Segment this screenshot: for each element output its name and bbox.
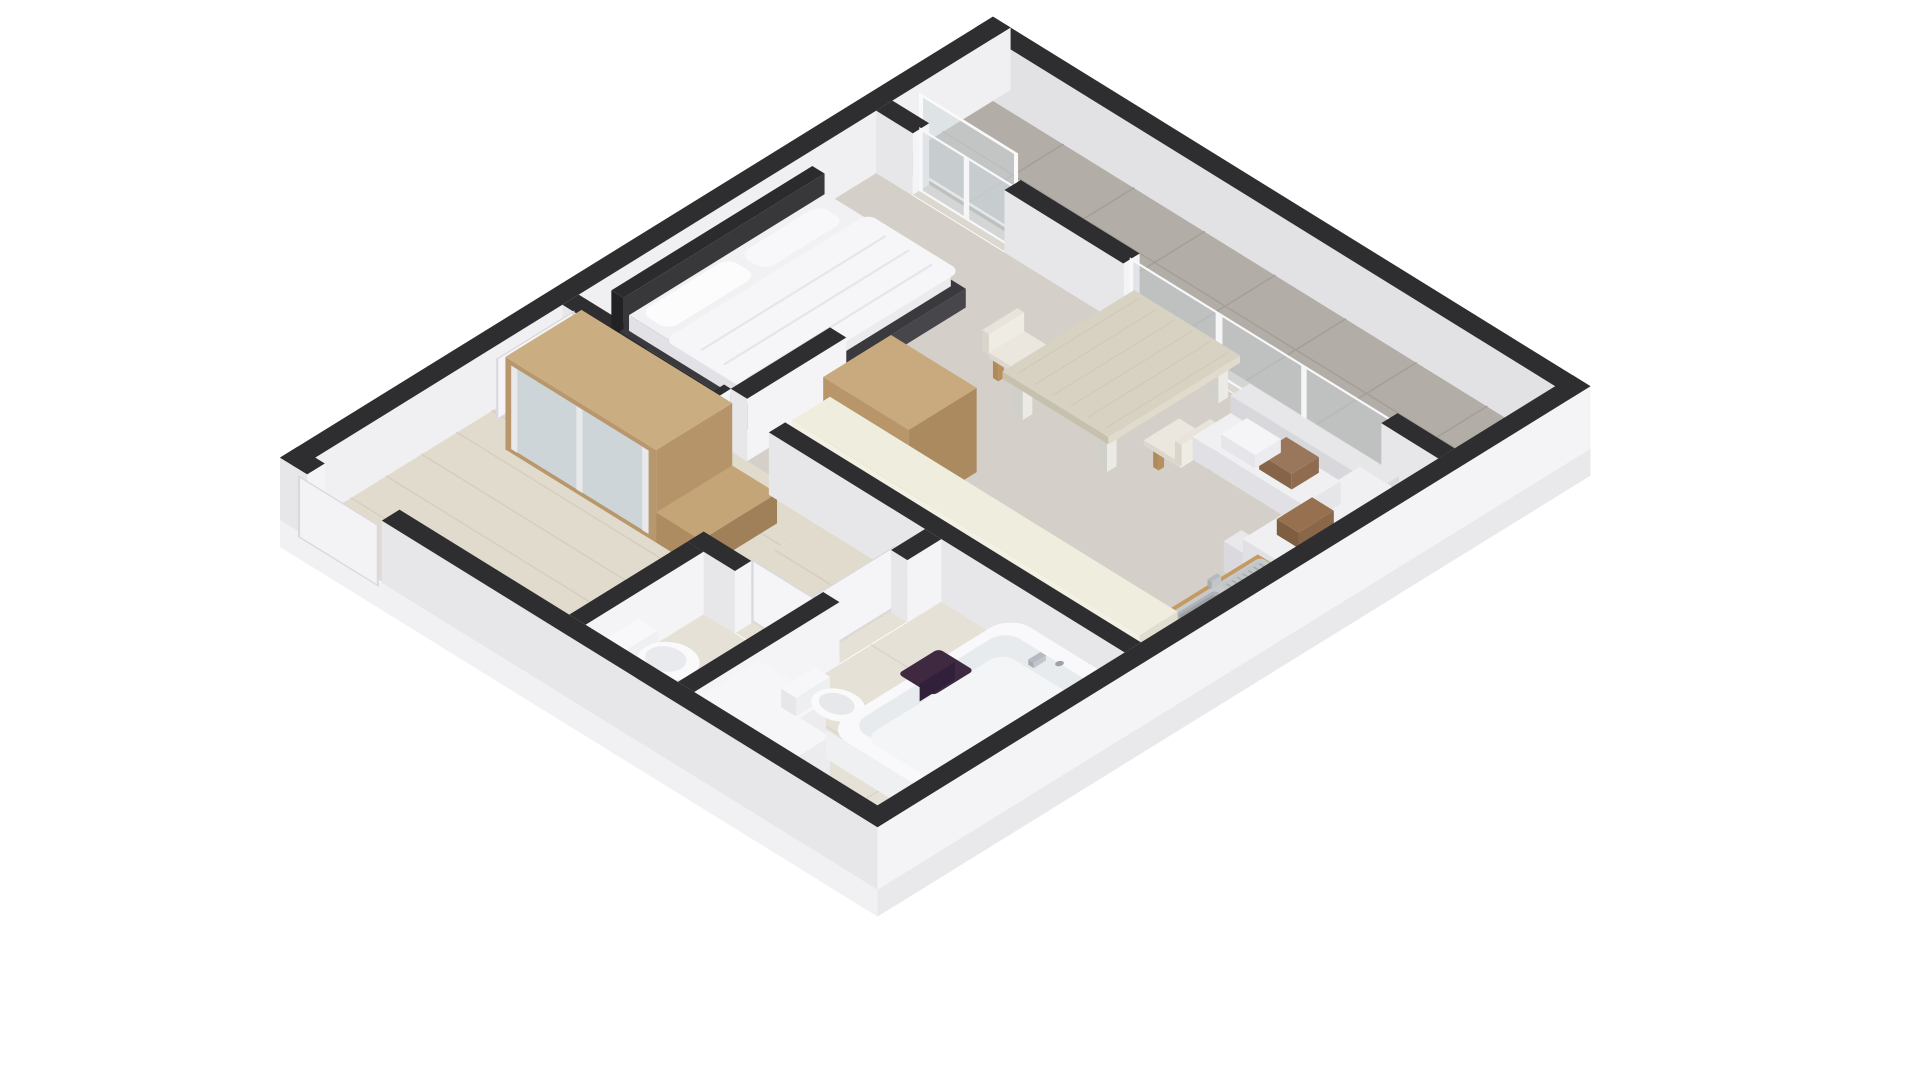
floor-plan-3d-render [0,0,1920,1080]
floor-plan-stage [0,0,1920,1080]
